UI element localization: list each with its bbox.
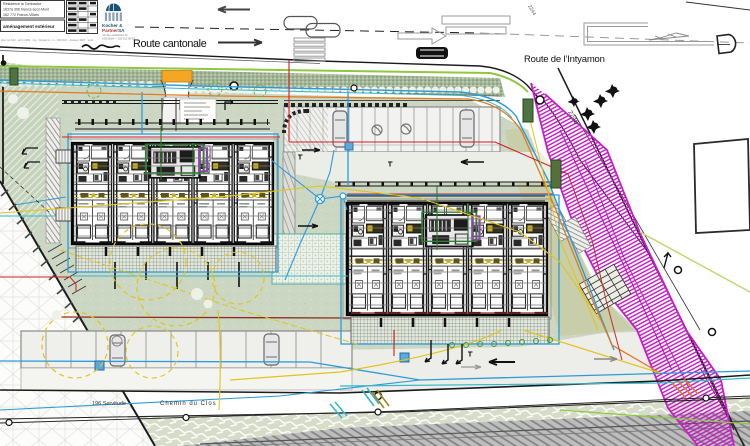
svg-text:1637a 306 blancs-secs-Mont: 1637a 306 blancs-secs-Mont — [3, 8, 49, 12]
svg-text:Route de l’Intyamon: Route de l’Intyamon — [524, 54, 605, 65]
svg-text:plan no 102 . éch 1:250 . ing: plan no 102 . éch 1:250 . ing . Duparc A… — [1, 38, 94, 42]
svg-text:1630 Bulle - t 026 912 00 00: 1630 Bulle - t 026 912 00 00 — [102, 37, 135, 41]
svg-text:Résidence la Tombache: Résidence la Tombache — [3, 2, 41, 6]
svg-text:aménagement extérieur: aménagement extérieur — [3, 24, 55, 29]
svg-text:162 772 Francs-Villars: 162 772 Francs-Villars — [3, 13, 39, 17]
svg-text:rue des architectes 12: rue des architectes 12 — [102, 33, 128, 37]
svg-text:196 Servitude: 196 Servitude — [92, 401, 126, 407]
svg-text:PartnerSA: PartnerSA — [102, 28, 125, 33]
svg-text:Route cantonale: Route cantonale — [133, 38, 207, 50]
svg-text:Chemin du Clos: Chemin du Clos — [160, 401, 217, 407]
